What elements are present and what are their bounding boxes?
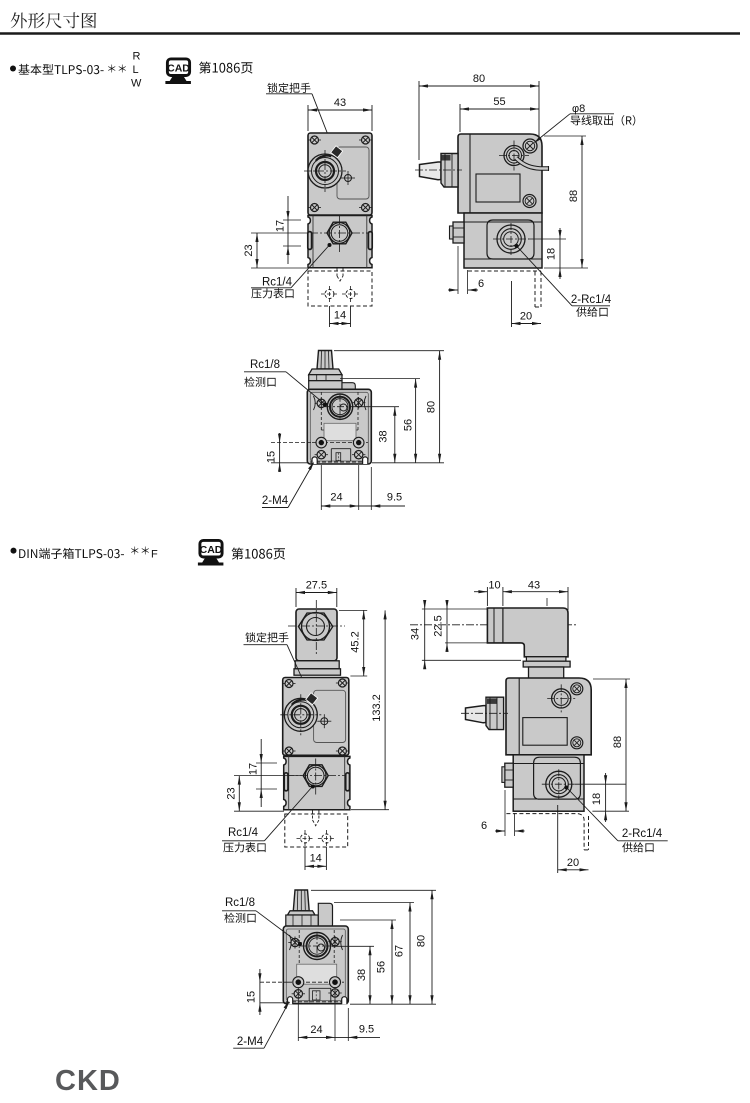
svg-text:F: F bbox=[151, 549, 158, 561]
svg-text:φ8: φ8 bbox=[572, 103, 585, 115]
svg-text:CKD: CKD bbox=[55, 1065, 121, 1097]
svg-text:22.5: 22.5 bbox=[433, 615, 445, 636]
svg-text:6: 6 bbox=[481, 820, 487, 832]
svg-text:10: 10 bbox=[488, 580, 500, 592]
svg-text:24: 24 bbox=[310, 1024, 322, 1036]
svg-text:2-Rc1/4: 2-Rc1/4 bbox=[622, 828, 663, 840]
svg-text:55: 55 bbox=[493, 96, 505, 108]
svg-text:R: R bbox=[133, 51, 141, 63]
svg-text:Rc1/4: Rc1/4 bbox=[262, 277, 293, 289]
svg-text:38: 38 bbox=[356, 969, 368, 981]
svg-text:Rc1/4: Rc1/4 bbox=[228, 827, 259, 839]
svg-text:45.2: 45.2 bbox=[350, 631, 362, 652]
svg-text:W: W bbox=[131, 78, 142, 90]
svg-text:15: 15 bbox=[266, 451, 278, 463]
svg-text:Rc1/8: Rc1/8 bbox=[250, 359, 280, 371]
svg-text:18: 18 bbox=[591, 793, 603, 805]
svg-text:23: 23 bbox=[243, 244, 255, 256]
svg-text:27.5: 27.5 bbox=[306, 580, 327, 592]
svg-text:15: 15 bbox=[246, 991, 258, 1003]
svg-text:43: 43 bbox=[528, 580, 540, 592]
svg-text:43: 43 bbox=[334, 97, 346, 109]
svg-text:80: 80 bbox=[416, 935, 428, 947]
svg-text:80: 80 bbox=[426, 401, 438, 413]
svg-text:14: 14 bbox=[310, 853, 322, 865]
svg-text:14: 14 bbox=[334, 310, 346, 322]
svg-text:2-M4: 2-M4 bbox=[262, 495, 289, 507]
svg-text:88: 88 bbox=[568, 190, 580, 202]
svg-text:56: 56 bbox=[403, 419, 415, 431]
svg-text:9.5: 9.5 bbox=[359, 1024, 374, 1036]
svg-text:20: 20 bbox=[567, 857, 579, 869]
svg-text:34: 34 bbox=[410, 628, 422, 640]
svg-text:67: 67 bbox=[394, 945, 406, 957]
svg-text:80: 80 bbox=[473, 73, 485, 85]
svg-text:20: 20 bbox=[520, 311, 532, 323]
svg-text:56: 56 bbox=[376, 961, 388, 973]
svg-text:23: 23 bbox=[225, 787, 237, 799]
svg-text:Rc1/8: Rc1/8 bbox=[225, 897, 255, 909]
svg-text:17: 17 bbox=[275, 220, 287, 232]
svg-text:133.2: 133.2 bbox=[371, 694, 383, 722]
svg-text:17: 17 bbox=[248, 763, 260, 775]
svg-text:24: 24 bbox=[330, 492, 342, 504]
svg-text:38: 38 bbox=[378, 430, 390, 442]
svg-text:2-Rc1/4: 2-Rc1/4 bbox=[571, 294, 612, 306]
svg-text:L: L bbox=[133, 64, 139, 76]
svg-text:18: 18 bbox=[546, 248, 558, 260]
svg-text:CAD: CAD bbox=[200, 544, 223, 556]
svg-text:CAD: CAD bbox=[167, 62, 190, 74]
svg-text:6: 6 bbox=[478, 278, 484, 290]
svg-text:88: 88 bbox=[612, 736, 624, 748]
svg-text:2-M4: 2-M4 bbox=[237, 1036, 264, 1048]
svg-text:9.5: 9.5 bbox=[387, 492, 402, 504]
